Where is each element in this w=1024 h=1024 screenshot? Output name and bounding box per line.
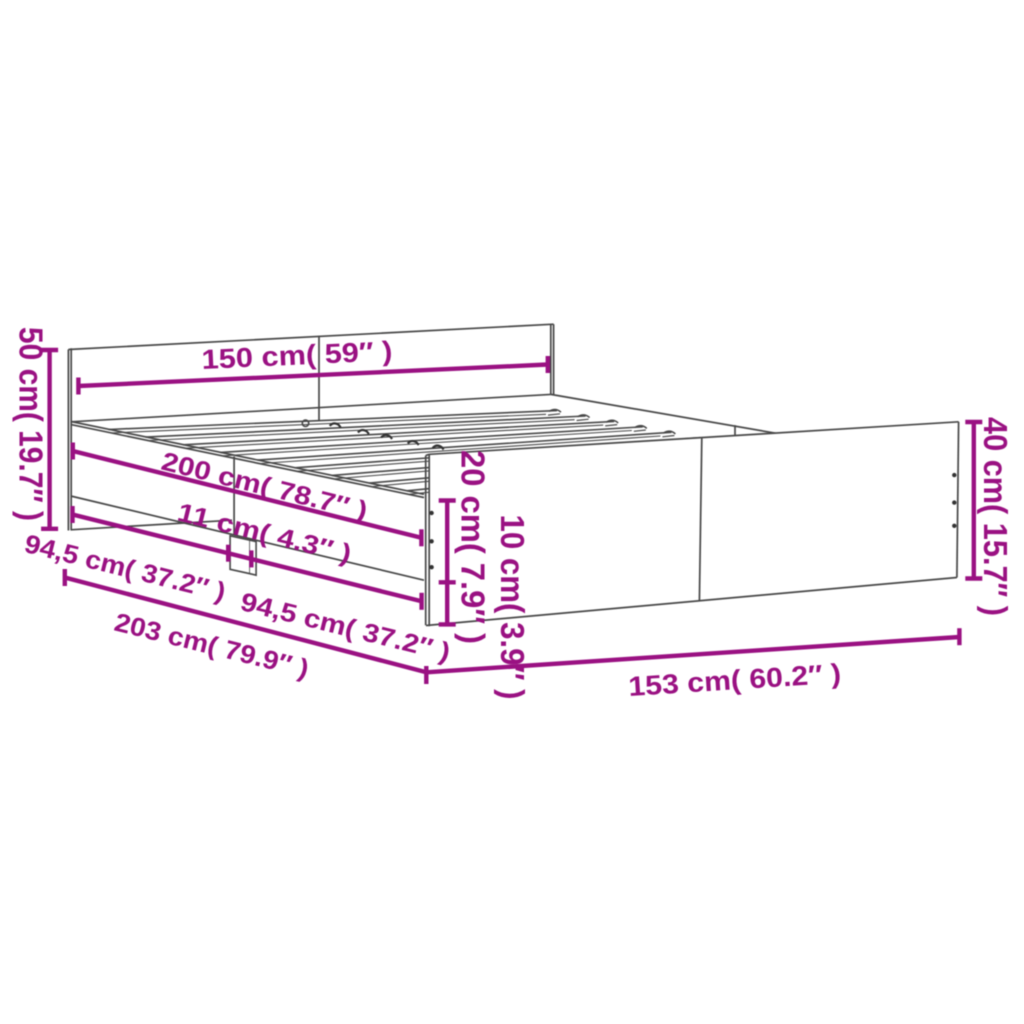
- svg-text:153 cm( 60.2″ ): 153 cm( 60.2″ ): [627, 658, 842, 702]
- svg-text:20 cm( 7.9″ ): 20 cm( 7.9″ ): [455, 450, 492, 644]
- svg-text:10 cm( 3.9″ ): 10 cm( 3.9″ ): [494, 515, 531, 700]
- svg-text:40 cm( 15.7″ ): 40 cm( 15.7″ ): [977, 417, 1014, 616]
- svg-text:50 cm( 19.7″ ): 50 cm( 19.7″ ): [13, 327, 50, 521]
